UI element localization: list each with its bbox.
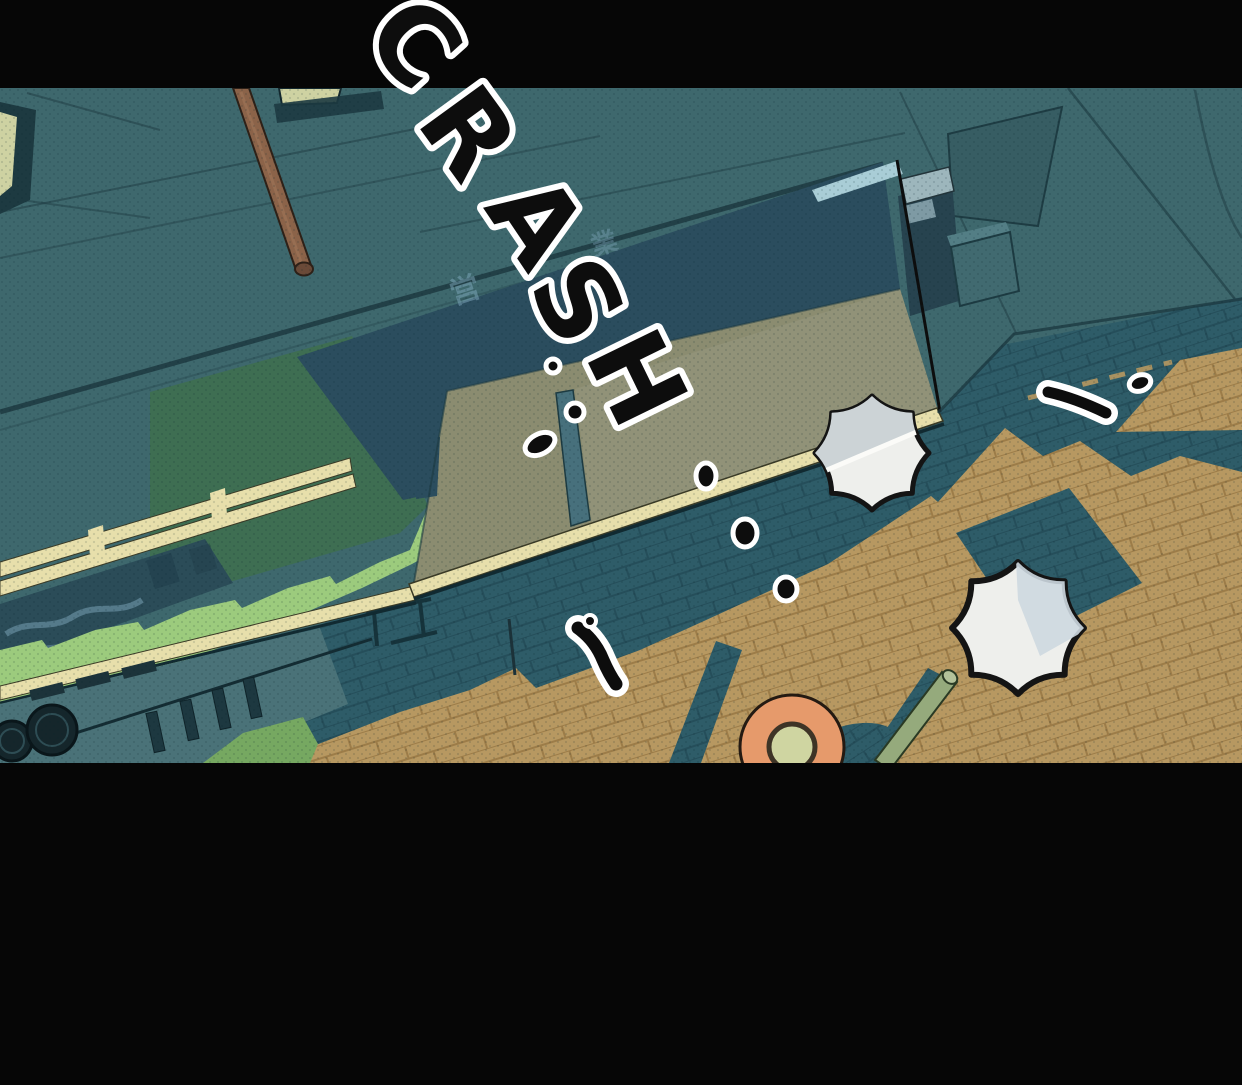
parasol-bottom bbox=[952, 560, 1086, 694]
parasol-top bbox=[815, 396, 929, 510]
comic-panel-page: 営 業 bbox=[0, 0, 1242, 1085]
webtoon-panel-art: 営 業 bbox=[0, 0, 1242, 1085]
street-scene: 営 業 bbox=[0, 88, 1242, 799]
